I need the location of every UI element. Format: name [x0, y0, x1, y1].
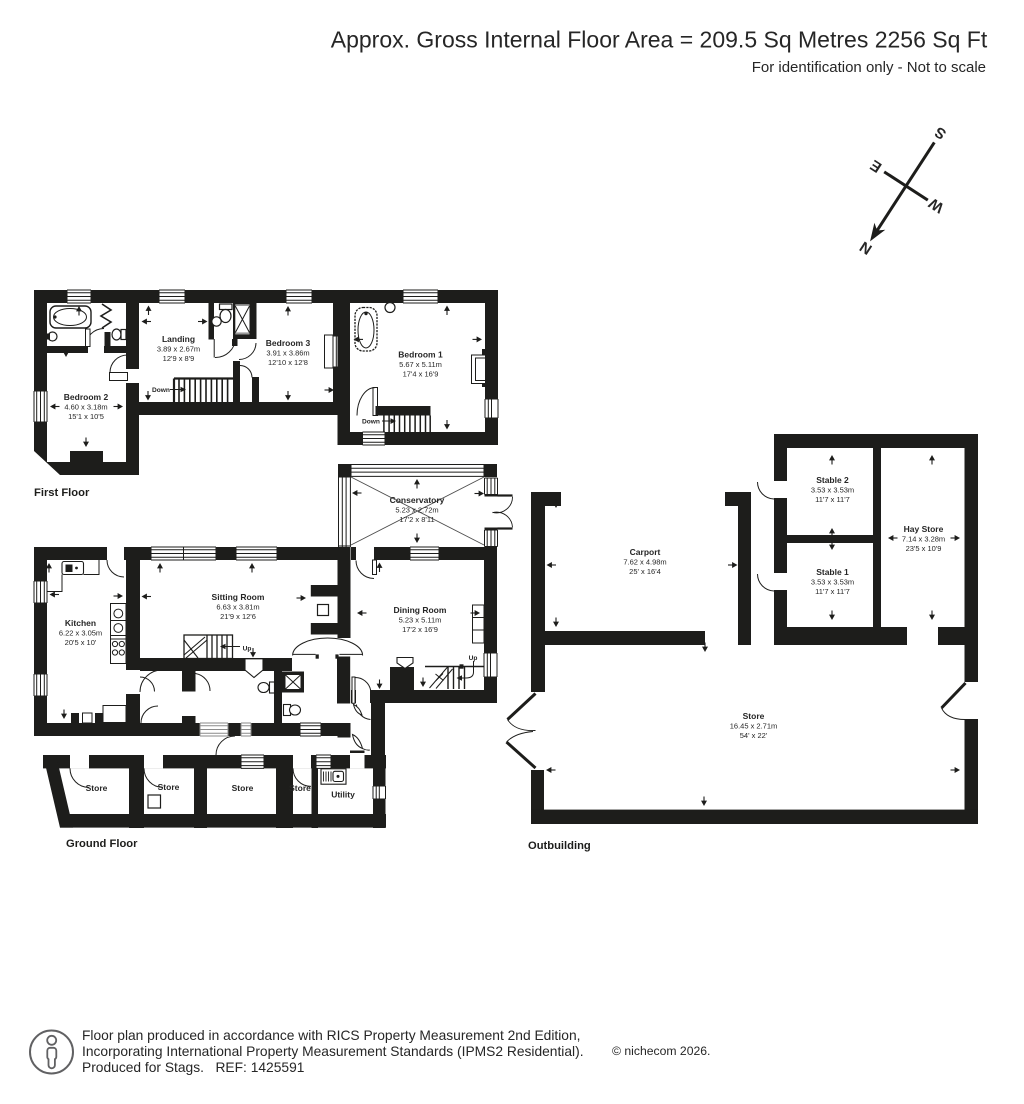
svg-text:6.22 x 3.05m: 6.22 x 3.05m	[59, 629, 102, 638]
svg-text:Bedroom 1: Bedroom 1	[398, 350, 443, 360]
svg-text:W: W	[925, 194, 947, 216]
svg-text:4.60 x 3.18m: 4.60 x 3.18m	[64, 403, 107, 412]
svg-text:7.14 x 3.28m: 7.14 x 3.28m	[902, 535, 945, 544]
svg-text:6.63 x 3.81m: 6.63 x 3.81m	[216, 603, 259, 612]
svg-text:12'9 x 8'9: 12'9 x 8'9	[163, 354, 195, 363]
svg-text:Utility: Utility	[331, 790, 355, 800]
svg-text:Kitchen: Kitchen	[65, 618, 96, 628]
svg-text:54' x 22': 54' x 22'	[740, 731, 768, 740]
svg-text:Ground Floor: Ground Floor	[66, 838, 138, 850]
svg-text:21'9 x 12'6: 21'9 x 12'6	[220, 612, 256, 621]
svg-text:23'5 x 10'9: 23'5 x 10'9	[906, 544, 942, 553]
svg-text:11'7 x 11'7: 11'7 x 11'7	[815, 495, 850, 504]
svg-text:3.53 x 3.53m: 3.53 x 3.53m	[811, 486, 854, 495]
svg-text:Sitting Room: Sitting Room	[212, 592, 265, 602]
svg-text:Conservatory: Conservatory	[390, 495, 445, 505]
svg-text:16.45 x 2.71m: 16.45 x 2.71m	[730, 722, 778, 731]
svg-text:Approx. Gross Internal Floor A: Approx. Gross Internal Floor Area = 209.…	[331, 27, 988, 53]
svg-text:For identification only - Not: For identification only - Not to scale	[752, 59, 986, 76]
svg-text:Store: Store	[86, 783, 108, 793]
svg-text:17'2 x 16'9: 17'2 x 16'9	[402, 625, 438, 634]
svg-text:Store: Store	[158, 782, 180, 792]
svg-text:Hay Store: Hay Store	[904, 524, 944, 534]
svg-text:17'4 x 16'9: 17'4 x 16'9	[403, 370, 439, 379]
svg-text:25' x 16'4: 25' x 16'4	[629, 567, 661, 576]
svg-text:15'1 x 10'5: 15'1 x 10'5	[68, 412, 104, 421]
svg-text:3.53 x 3.53m: 3.53 x 3.53m	[811, 578, 854, 587]
svg-text:12'10 x 12'8: 12'10 x 12'8	[268, 358, 308, 367]
svg-text:Stable 2: Stable 2	[816, 475, 849, 485]
svg-text:Down: Down	[362, 419, 380, 426]
svg-text:Bedroom 3: Bedroom 3	[266, 338, 311, 348]
svg-text:Up: Up	[243, 646, 252, 653]
svg-text:11'7 x 11'7: 11'7 x 11'7	[815, 587, 850, 596]
svg-text:First Floor: First Floor	[34, 487, 90, 499]
svg-text:Dining Room: Dining Room	[394, 605, 447, 615]
svg-text:3.91 x 3.86m: 3.91 x 3.86m	[266, 349, 309, 358]
svg-text:Carport: Carport	[630, 547, 661, 557]
svg-text:Store: Store	[289, 783, 311, 793]
svg-text:5.67 x 5.11m: 5.67 x 5.11m	[399, 360, 442, 369]
svg-text:S: S	[932, 123, 950, 143]
svg-text:17'2 x 8'11: 17'2 x 8'11	[399, 515, 434, 524]
svg-text:E: E	[867, 156, 885, 176]
svg-text:Store: Store	[232, 783, 254, 793]
svg-text:3.89 x 2.67m: 3.89 x 2.67m	[157, 345, 200, 354]
svg-text:N: N	[857, 238, 875, 258]
svg-text:20'5 x 10': 20'5 x 10'	[65, 638, 97, 647]
svg-text:5.23 x 2.72m: 5.23 x 2.72m	[395, 506, 438, 515]
svg-text:© nichecom 2026.: © nichecom 2026.	[612, 1044, 710, 1058]
svg-text:Up: Up	[469, 655, 478, 662]
svg-text:7.62 x 4.98m: 7.62 x 4.98m	[623, 558, 666, 567]
svg-text:Incorporating International Pr: Incorporating International Property Mea…	[82, 1044, 584, 1059]
svg-text:Stable 1: Stable 1	[816, 567, 849, 577]
svg-text:Produced for Stags. REF: 142: Produced for Stags. REF: 1425591	[82, 1060, 304, 1075]
svg-text:Store: Store	[743, 711, 765, 721]
svg-text:Floor plan produced in accorda: Floor plan produced in accordance with R…	[82, 1028, 580, 1043]
svg-text:5.23 x 5.11m: 5.23 x 5.11m	[399, 616, 442, 625]
svg-text:Bedroom 2: Bedroom 2	[64, 392, 109, 402]
svg-text:Down: Down	[152, 387, 170, 394]
svg-text:Outbuilding: Outbuilding	[528, 840, 591, 852]
svg-text:Landing: Landing	[162, 334, 195, 344]
